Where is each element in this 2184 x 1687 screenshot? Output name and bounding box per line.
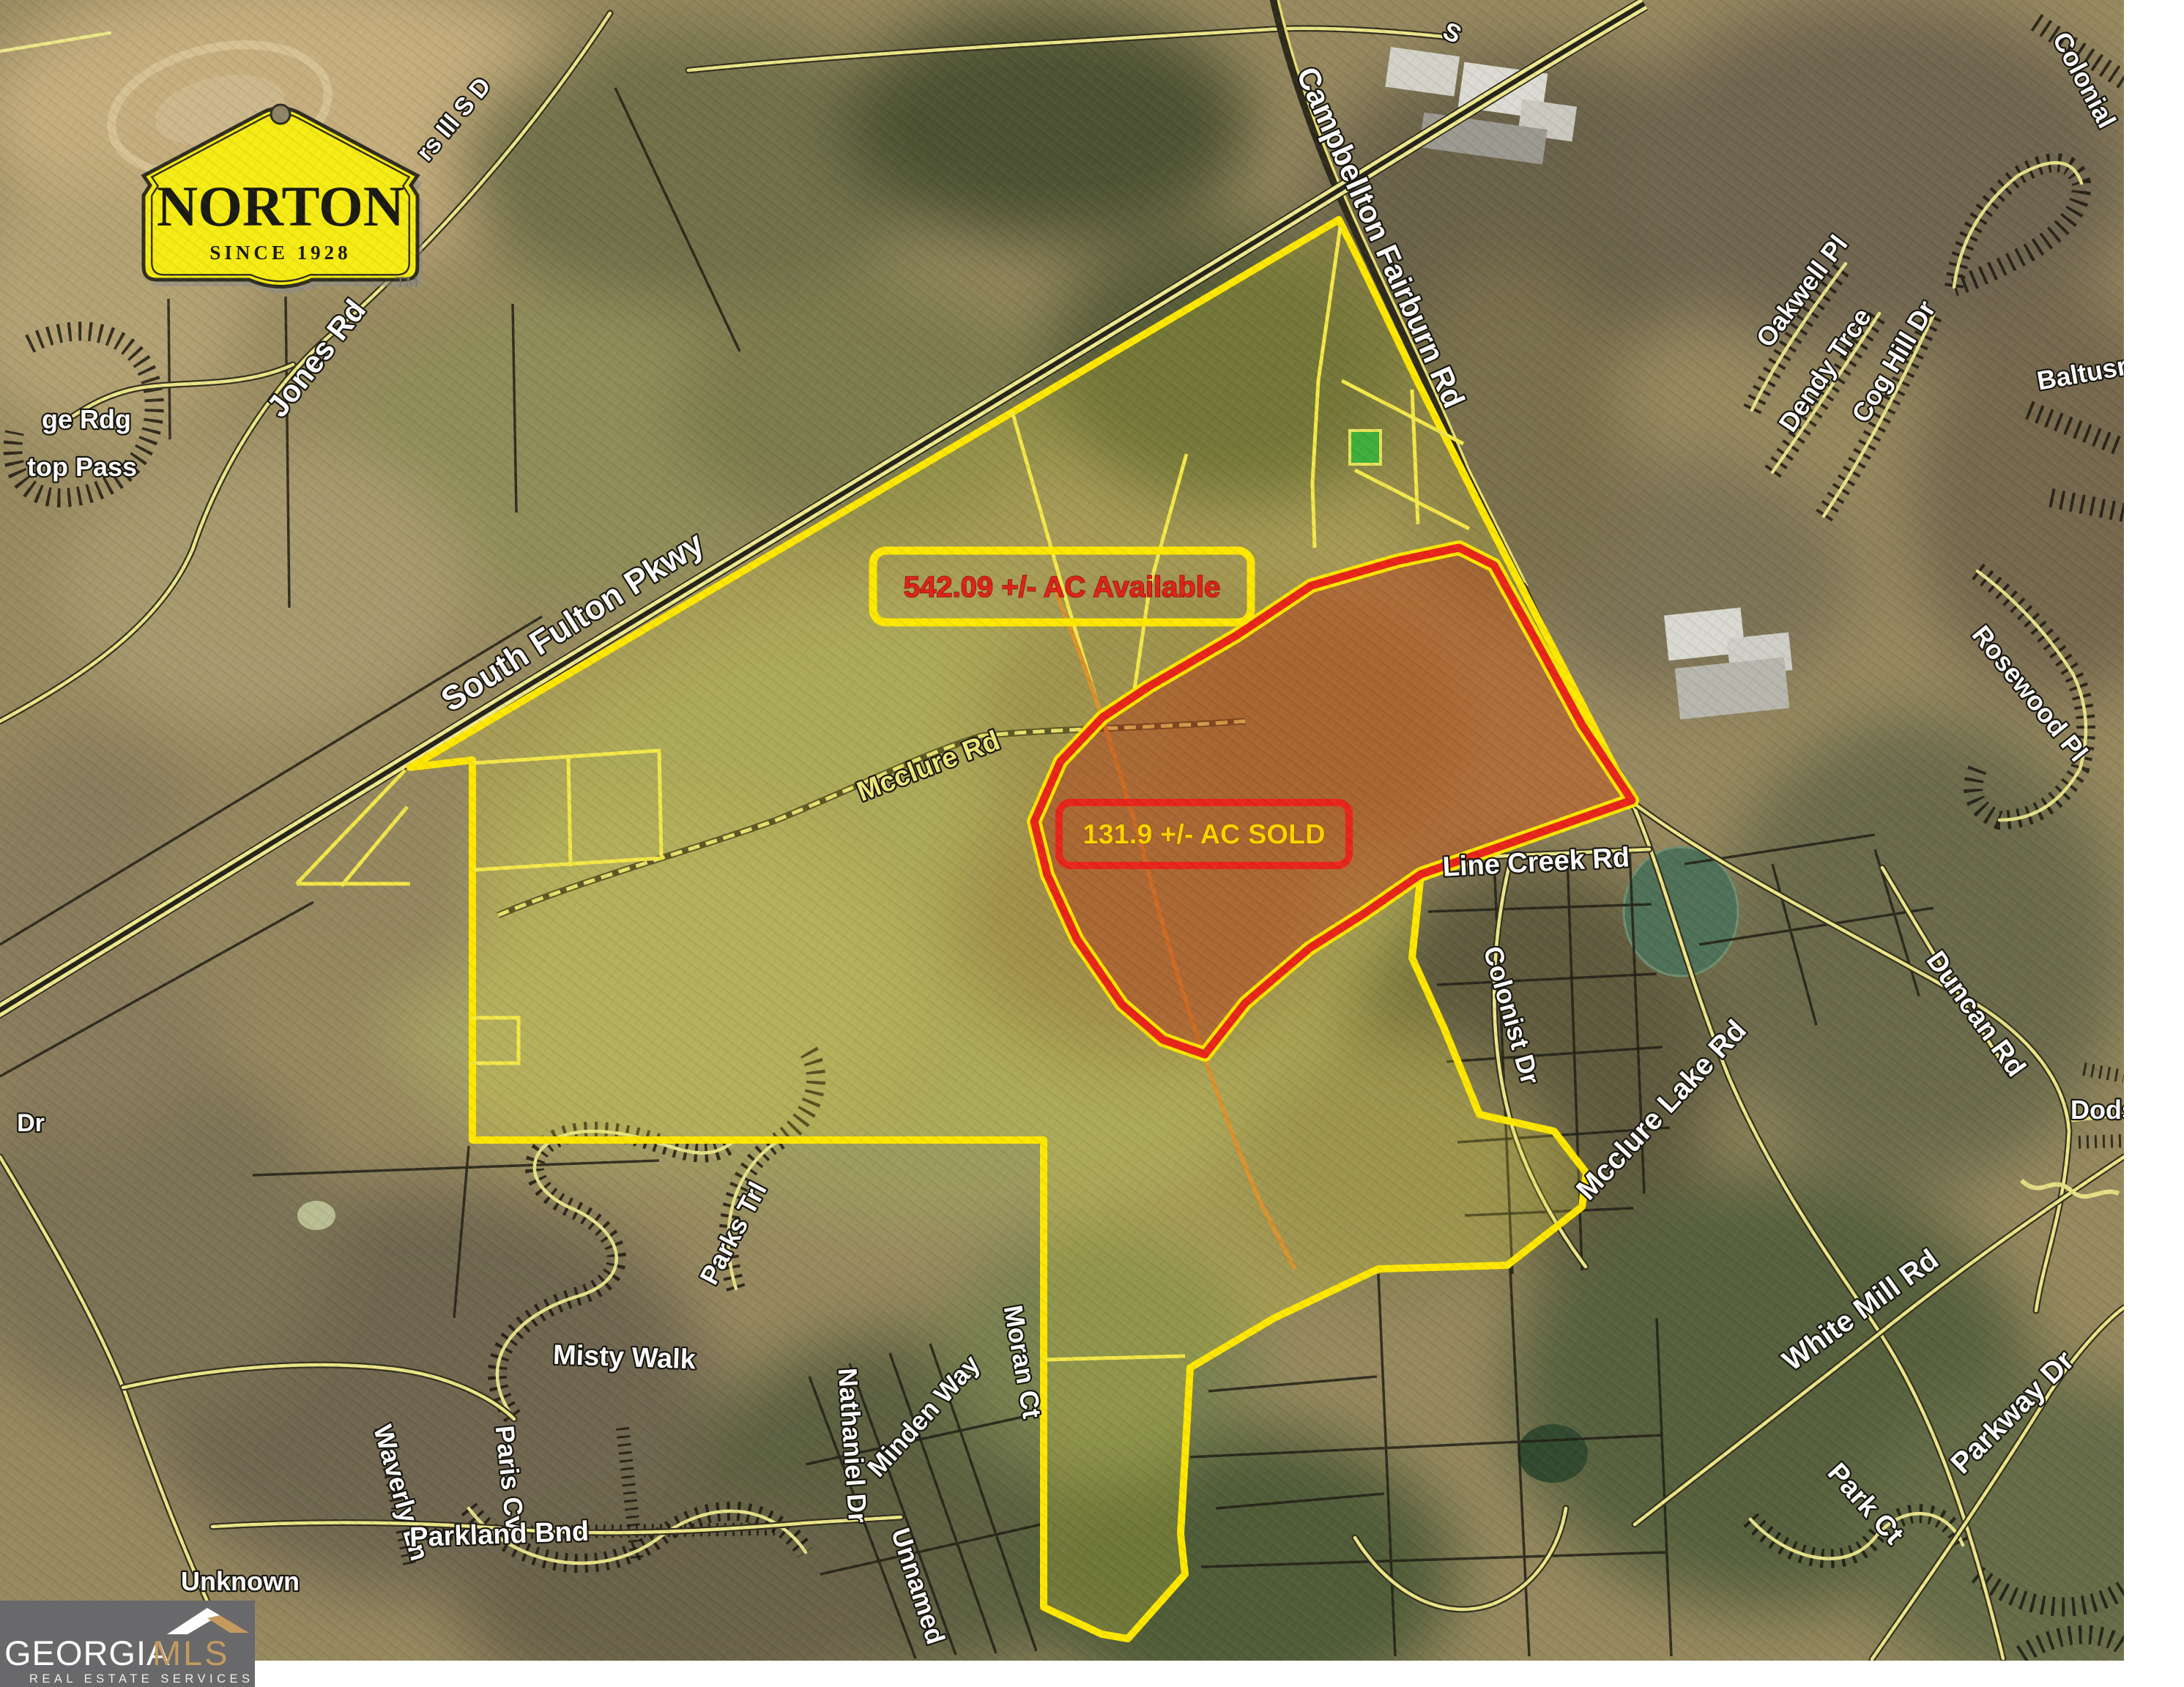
norton-logo-since: SINCE 1928 [209, 242, 351, 264]
pond [1518, 1424, 1588, 1483]
georgia-mls-logo: GEORGIA MLS REAL ESTATE SERVICES [0, 1601, 255, 1687]
norton-logo-name: NORTON [157, 174, 404, 238]
road-label-dodson: Dods [2070, 1095, 2124, 1125]
mcclure-lake [1624, 847, 1738, 976]
mls-tagline: REAL ESTATE SERVICES [29, 1672, 254, 1686]
road-label-dr: Dr [17, 1109, 45, 1137]
available-callout-label: 542.09 +/- AC Available [904, 571, 1220, 603]
pond [297, 1201, 335, 1230]
aerial-map-svg: 542.09 +/- AC Available 131.9 +/- AC SOL… [0, 0, 2124, 1661]
road-label-misty-walk: Misty Walk [552, 1340, 697, 1376]
green-parcel [1350, 431, 1381, 464]
road-label-unknown: Unknown [181, 1566, 300, 1596]
parcel-line [168, 299, 170, 439]
mls-brand-white: GEORGIA [4, 1634, 170, 1672]
norton-trademark: TM [395, 273, 419, 291]
road-label-ridge: ge Rdg [42, 404, 131, 434]
terrain-patch [1714, 718, 2124, 1186]
listing-map-page: 542.09 +/- AC Available 131.9 +/- AC SOL… [0, 0, 2184, 1687]
aerial-map: 542.09 +/- AC Available 131.9 +/- AC SOL… [0, 0, 2124, 1661]
road-label-parkland-bnd: Parkland Bnd [409, 1516, 589, 1554]
sold-callout-label: 131.9 +/- AC SOLD [1082, 819, 1325, 850]
road-label-pass: top Pass [27, 452, 137, 482]
norton-logo-scroll-notch [271, 105, 290, 124]
mls-brand-gold: MLS [152, 1634, 230, 1672]
